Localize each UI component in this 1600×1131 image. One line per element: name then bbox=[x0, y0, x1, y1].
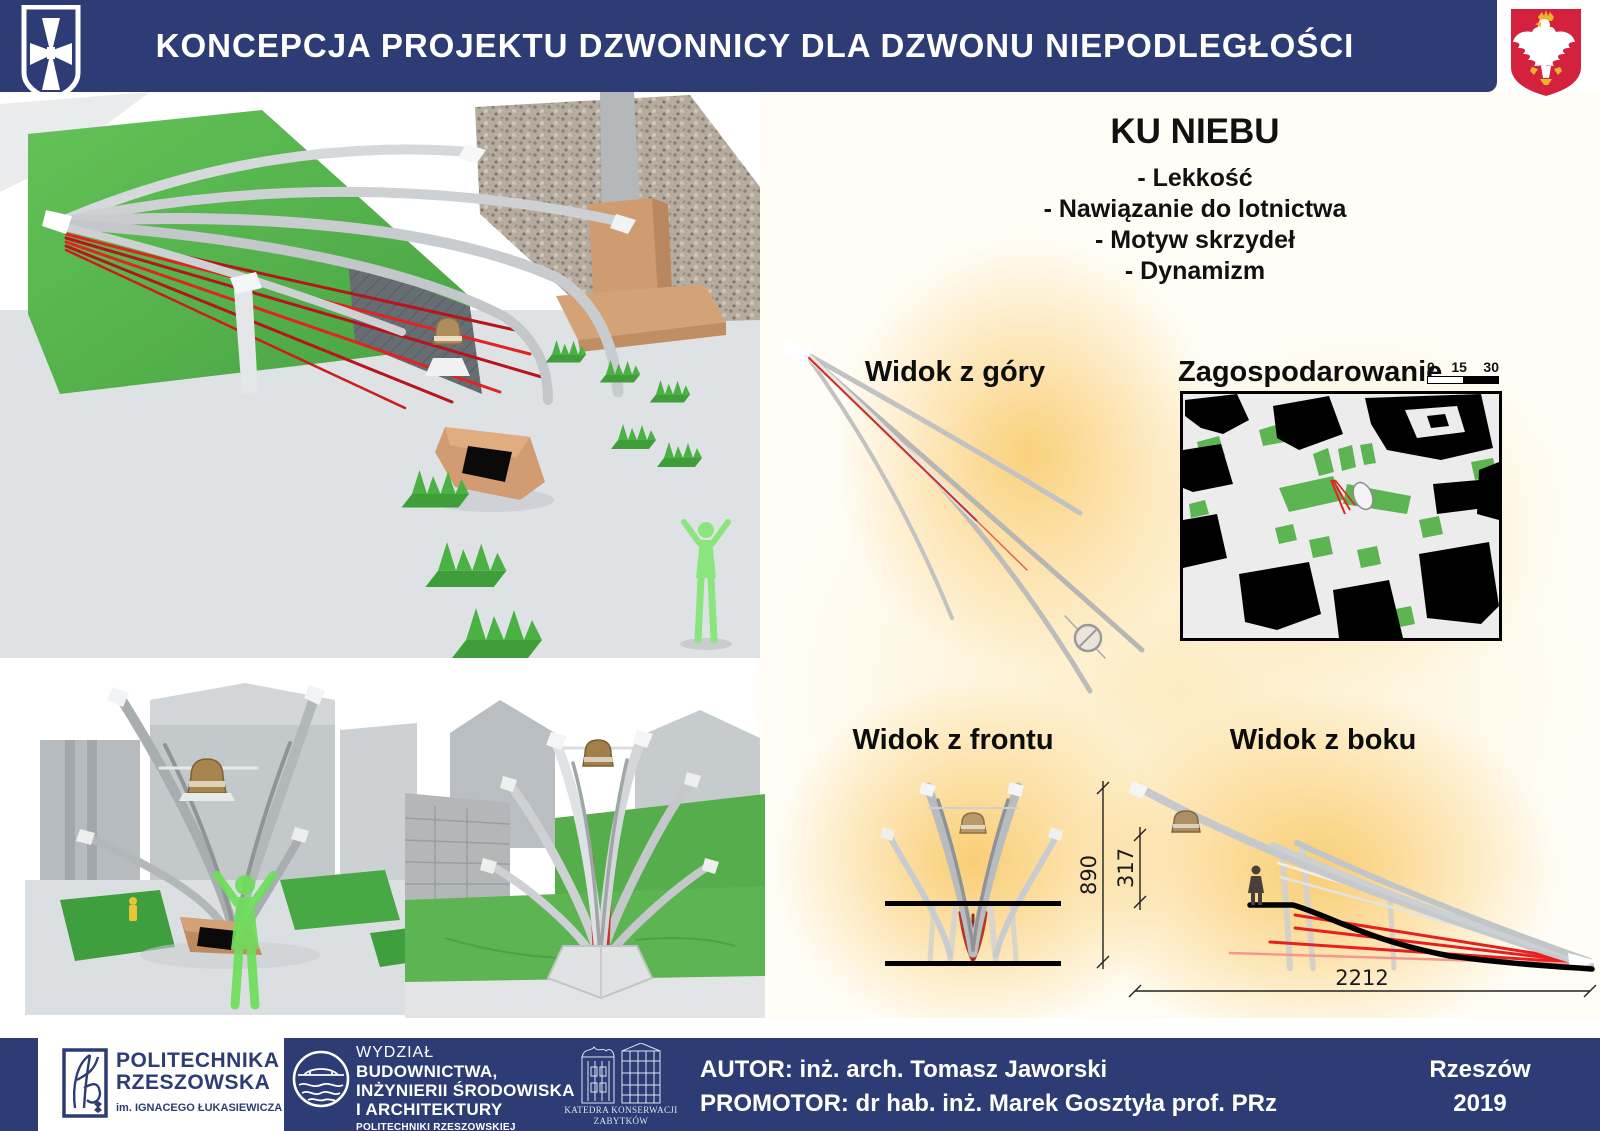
university-line1: POLITECHNIKA bbox=[116, 1050, 282, 1072]
prz-logo-icon bbox=[62, 1048, 108, 1118]
bell-icon bbox=[1172, 811, 1200, 832]
department-line2: ZABYTKÓW bbox=[556, 1116, 686, 1127]
map-site-marker bbox=[1331, 480, 1377, 514]
faculty-name: WYDZIAŁ BUDOWNICTWA, INŻYNIERII ŚRODOWIS… bbox=[356, 1043, 575, 1131]
person-silhouette bbox=[1248, 866, 1264, 906]
dimension-2212: 2212 bbox=[1129, 966, 1596, 997]
page-title: KONCEPCJA PROJEKTU DZWONNICY DLA DZWONU … bbox=[110, 0, 1400, 92]
scale-tick: 30 bbox=[1483, 360, 1499, 374]
elevation-drawings: 890 317 bbox=[850, 755, 1600, 1017]
bell-plan-symbol bbox=[1075, 625, 1101, 651]
top-view-drawing bbox=[775, 338, 1165, 710]
map-scale-bar: 0 15 30 bbox=[1427, 360, 1499, 384]
faculty-line5: POLITECHNIKI RZESZOWSKIEJ bbox=[356, 1121, 575, 1131]
front-elevation bbox=[880, 782, 1063, 966]
concept-title: KU NIEBU bbox=[930, 112, 1460, 152]
svg-text:2212: 2212 bbox=[1335, 966, 1388, 990]
department-name: KATEDRA KONSERWACJI ZABYTKÓW bbox=[556, 1105, 686, 1127]
place-and-year: Rzeszów 2019 bbox=[1410, 1053, 1550, 1121]
apex-cap bbox=[781, 340, 813, 365]
poster: KONCEPCJA PROJEKTU DZWONNICY DLA DZWONU … bbox=[0, 0, 1600, 1131]
department-logo-icon bbox=[576, 1043, 666, 1105]
site-plan-drawing bbox=[1183, 394, 1499, 638]
render-aerial-view bbox=[0, 92, 760, 658]
city-label: Rzeszów bbox=[1410, 1053, 1550, 1087]
university-line2: RZESZOWSKA bbox=[116, 1072, 282, 1094]
author-line: AUTOR: inż. arch. Tomasz Jaworski bbox=[700, 1053, 1277, 1087]
svg-text:890: 890 bbox=[1077, 855, 1101, 895]
scale-tick: 0 bbox=[1427, 360, 1435, 374]
rzeszow-crest-icon bbox=[21, 5, 81, 103]
concept-bullet: - Dynamizm bbox=[905, 256, 1485, 287]
render-closeup-view bbox=[405, 678, 765, 1018]
concept-bullet: - Lekkość bbox=[905, 163, 1485, 194]
faculty-line4: I ARCHITEKTURY bbox=[356, 1100, 575, 1119]
side-elevation bbox=[1128, 781, 1598, 971]
small-figure bbox=[129, 897, 137, 921]
concept-bullet: - Nawiązanie do lotnictwa bbox=[905, 194, 1485, 225]
credits: AUTOR: inż. arch. Tomasz Jaworski PROMOT… bbox=[700, 1053, 1277, 1121]
faculty-line2: BUDOWNICTWA, bbox=[356, 1062, 575, 1081]
faculty-line3: INŻYNIERII ŚRODOWISKA bbox=[356, 1081, 575, 1100]
dimension-890: 890 bbox=[1077, 781, 1109, 969]
scale-tick: 15 bbox=[1451, 360, 1467, 374]
svg-text:317: 317 bbox=[1114, 848, 1138, 888]
concept-bullet: - Motyw skrzydeł bbox=[905, 225, 1485, 256]
bell-icon bbox=[960, 813, 986, 833]
university-name: POLITECHNIKA RZESZOWSKA im. IGNACEGO ŁUK… bbox=[116, 1050, 282, 1119]
site-plan-label: Zagospodarowanie bbox=[1178, 356, 1418, 392]
dimension-317: 317 bbox=[1114, 827, 1146, 910]
site-plan-map bbox=[1180, 391, 1502, 641]
university-line3: im. IGNACEGO ŁUKASIEWICZA bbox=[116, 1097, 282, 1119]
bell-icon bbox=[583, 740, 613, 766]
concept-bullets: - Lekkość - Nawiązanie do lotnictwa - Mo… bbox=[905, 163, 1485, 287]
render-street-view bbox=[25, 655, 420, 1015]
faculty-logo-icon bbox=[290, 1048, 352, 1110]
faculty-line1: WYDZIAŁ bbox=[356, 1043, 575, 1062]
department-line1: KATEDRA KONSERWACJI bbox=[556, 1105, 686, 1116]
promotor-line: PROMOTOR: dr hab. inż. Marek Gosztyła pr… bbox=[700, 1087, 1277, 1121]
year-label: 2019 bbox=[1410, 1087, 1550, 1121]
poland-eagle-icon bbox=[1504, 5, 1588, 101]
